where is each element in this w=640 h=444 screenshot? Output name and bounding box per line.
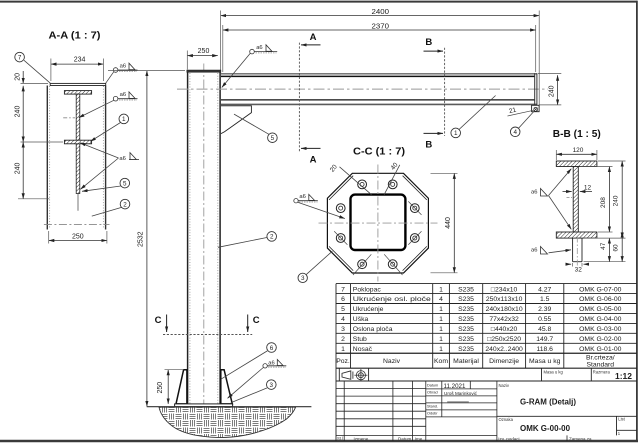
svg-text:1: 1	[454, 130, 458, 137]
svg-text:List: List	[618, 417, 625, 422]
svg-text:St.l: St.l	[337, 436, 343, 441]
svg-text:a6: a6	[119, 156, 125, 162]
svg-text:5: 5	[271, 135, 275, 142]
svg-text:118.6: 118.6	[536, 346, 553, 353]
svg-text:Nosač: Nosač	[353, 346, 373, 353]
svg-text:Zamena za: Zamena za	[569, 436, 592, 441]
svg-text:2: 2	[341, 336, 345, 343]
svg-text:Poz.: Poz.	[336, 358, 350, 365]
svg-text:Uroš Marinković: Uroš Marinković	[444, 391, 478, 396]
svg-text:Ukrućenje: Ukrućenje	[353, 306, 384, 313]
svg-text:4.27: 4.27	[538, 286, 551, 293]
svg-text:3: 3	[301, 275, 305, 282]
svg-text:4: 4	[341, 316, 345, 323]
svg-text:C: C	[155, 315, 162, 326]
svg-text:2: 2	[270, 234, 274, 241]
svg-text:Razmera: Razmera	[593, 370, 611, 375]
svg-text:1: 1	[341, 346, 345, 353]
svg-text:Poklopac: Poklopac	[353, 286, 382, 293]
svg-text:Naziv: Naziv	[383, 358, 401, 365]
svg-text:A: A	[310, 32, 317, 43]
svg-text:6: 6	[341, 296, 345, 303]
svg-text:A: A	[310, 155, 317, 166]
svg-text:Stand.: Stand.	[427, 405, 438, 409]
svg-text:20: 20	[15, 73, 22, 81]
svg-text:S235: S235	[458, 286, 474, 293]
svg-text:Br.crteza/: Br.crteza/	[586, 354, 615, 361]
svg-text:OMK G-07-00: OMK G-07-00	[579, 286, 622, 293]
svg-text:OMK G-04-00: OMK G-04-00	[579, 316, 622, 323]
svg-text:240: 240	[549, 85, 556, 97]
svg-text:B: B	[425, 37, 432, 48]
svg-text:Ukrućenje osl. ploče: Ukrućenje osl. ploče	[353, 296, 431, 303]
svg-text:250: 250	[157, 382, 164, 394]
svg-text:4: 4	[513, 129, 517, 136]
svg-text:440: 440	[445, 217, 452, 229]
svg-text:2532: 2532	[138, 231, 145, 247]
svg-text:Uška: Uška	[353, 316, 369, 323]
svg-text:Kom: Kom	[434, 358, 448, 365]
svg-text:11.2021: 11.2021	[444, 383, 466, 390]
svg-text:1: 1	[439, 336, 443, 343]
svg-text:S235: S235	[458, 306, 474, 313]
svg-text:OMK G-03-00: OMK G-03-00	[579, 326, 622, 333]
svg-text:Datum: Datum	[427, 384, 438, 388]
svg-text:250x113x10: 250x113x10	[486, 296, 523, 303]
svg-text:C-C (1 : 7): C-C (1 : 7)	[353, 146, 405, 157]
svg-text:G-RAM (Detalj): G-RAM (Detalj)	[520, 397, 576, 406]
svg-text:47: 47	[600, 242, 607, 250]
svg-text:60: 60	[613, 244, 620, 252]
svg-text:5: 5	[341, 306, 345, 313]
svg-text:5: 5	[123, 180, 127, 187]
svg-text:□440x20: □440x20	[491, 326, 518, 333]
svg-text:a6: a6	[120, 63, 126, 69]
svg-text:240: 240	[15, 106, 22, 118]
svg-text:□250x2520: □250x2520	[487, 336, 521, 343]
svg-text:1.5: 1.5	[540, 296, 550, 303]
svg-text:2.39: 2.39	[538, 306, 551, 313]
svg-text:□234x10: □234x10	[491, 286, 518, 293]
svg-text:1: 1	[439, 306, 443, 313]
svg-text:2370: 2370	[372, 23, 390, 30]
svg-text:Naziv: Naziv	[499, 383, 510, 388]
svg-text:1: 1	[122, 116, 126, 123]
svg-text:a6: a6	[299, 194, 305, 200]
svg-text:2: 2	[123, 201, 127, 208]
svg-text:Oslona ploča: Oslona ploča	[353, 326, 393, 333]
svg-text:A-A (1 : 7): A-A (1 : 7)	[49, 31, 101, 42]
svg-text:250: 250	[198, 48, 210, 55]
svg-text:6: 6	[270, 345, 274, 352]
svg-text:2400: 2400	[372, 9, 390, 16]
svg-text:Datum: Datum	[398, 436, 412, 441]
svg-text:Ime: Ime	[415, 436, 423, 441]
svg-text:1: 1	[439, 316, 443, 323]
svg-text:Oznaka: Oznaka	[499, 417, 514, 422]
svg-text:Dimenzije: Dimenzije	[489, 358, 519, 365]
svg-text:3: 3	[270, 382, 274, 389]
svg-text:S235: S235	[458, 316, 474, 323]
svg-text:OMK G-00-00: OMK G-00-00	[520, 424, 571, 433]
svg-text:240x2..2400: 240x2..2400	[485, 346, 523, 353]
svg-text:120: 120	[573, 147, 584, 154]
svg-text:77x42x32: 77x42x32	[489, 316, 519, 323]
svg-text:S235: S235	[458, 296, 474, 303]
svg-text:4: 4	[439, 296, 443, 303]
svg-text:1: 1	[439, 346, 443, 353]
svg-text:250: 250	[72, 234, 84, 241]
svg-text:7: 7	[18, 54, 22, 61]
svg-text:45.8: 45.8	[538, 326, 551, 333]
svg-text:32: 32	[575, 267, 583, 274]
svg-text:Materijal: Materijal	[453, 358, 479, 365]
svg-text:7: 7	[341, 286, 345, 293]
svg-text:149.7: 149.7	[536, 336, 553, 343]
svg-text:Standard: Standard	[587, 362, 615, 369]
svg-text:208: 208	[600, 197, 607, 208]
svg-text:234: 234	[74, 56, 86, 63]
svg-text:1:12: 1:12	[615, 371, 632, 381]
svg-text:240x180x10: 240x180x10	[486, 306, 523, 313]
svg-text:B-B (1 : 5): B-B (1 : 5)	[553, 129, 601, 140]
svg-text:0.55: 0.55	[538, 316, 551, 323]
svg-text:B: B	[425, 139, 432, 150]
svg-text:OMK G-05-00: OMK G-05-00	[579, 306, 622, 313]
svg-text:Masa u kg: Masa u kg	[529, 358, 561, 365]
svg-text:1: 1	[439, 326, 443, 333]
svg-text:12: 12	[584, 185, 592, 192]
svg-text:OMK G-02-00: OMK G-02-00	[579, 336, 622, 343]
svg-text:OMK G-01-00: OMK G-01-00	[579, 346, 622, 353]
svg-text:Odobr: Odobr	[427, 412, 438, 416]
svg-text:Izv. podaci: Izv. podaci	[498, 436, 519, 441]
svg-text:Masa u kg: Masa u kg	[544, 370, 564, 375]
svg-text:a6: a6	[531, 248, 537, 254]
svg-text:240: 240	[612, 195, 619, 206]
svg-text:Izmene: Izmene	[354, 436, 369, 441]
svg-text:Obrad: Obrad	[427, 391, 438, 395]
svg-text:OMK G-06-00: OMK G-06-00	[579, 296, 622, 303]
svg-text:a6: a6	[256, 45, 262, 51]
svg-text:a6: a6	[268, 361, 274, 367]
svg-text:Stub: Stub	[353, 336, 367, 343]
svg-text:3: 3	[341, 326, 345, 333]
svg-text:S235: S235	[458, 346, 474, 353]
svg-text:a6: a6	[120, 92, 126, 98]
svg-text:240: 240	[15, 162, 22, 174]
svg-text:a6: a6	[531, 190, 537, 196]
svg-text:C: C	[253, 315, 260, 326]
svg-text:S235: S235	[458, 336, 474, 343]
svg-text:1: 1	[439, 286, 443, 293]
svg-text:S235: S235	[458, 326, 474, 333]
